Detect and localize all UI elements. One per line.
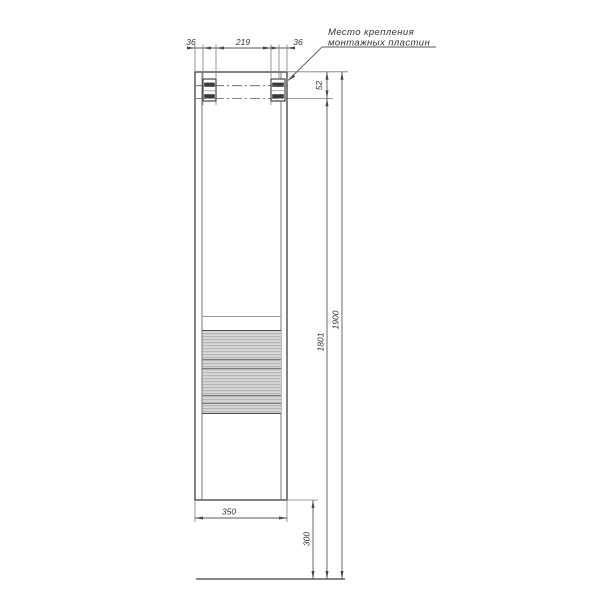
striped-band <box>203 330 282 414</box>
mounting-plate-left <box>203 79 216 101</box>
callout-line2: монтажных пластин <box>328 38 430 49</box>
dim-top-center: 219 <box>235 37 250 47</box>
dim-bottom-clearance: 300 <box>302 532 312 546</box>
dim-cabinet-width: 350 <box>222 507 236 517</box>
dim-top-left: 36 <box>186 37 196 47</box>
mounting-plate-callout: Место крепления монтажных пластин <box>288 27 436 81</box>
dim-top-right: 36 <box>293 37 303 47</box>
drawing-canvas: 36 219 36 Место крепления монтажных плас… <box>0 0 600 600</box>
right-dimension-group: 52 1801 1900 <box>287 72 348 579</box>
technical-drawing: 36 219 36 Место крепления монтажных плас… <box>0 0 600 600</box>
dim-total-height: 1900 <box>331 310 341 329</box>
mounting-plate-right <box>271 79 285 101</box>
leader-arrow-icon <box>288 74 295 80</box>
cabinet-outline <box>195 72 287 500</box>
bottom-dimension-group: 350 300 <box>195 500 345 579</box>
dim-plate-offset: 52 <box>314 81 324 91</box>
dim-plate-to-floor: 1801 <box>316 332 326 351</box>
callout-line1: Место крепления <box>328 27 414 38</box>
